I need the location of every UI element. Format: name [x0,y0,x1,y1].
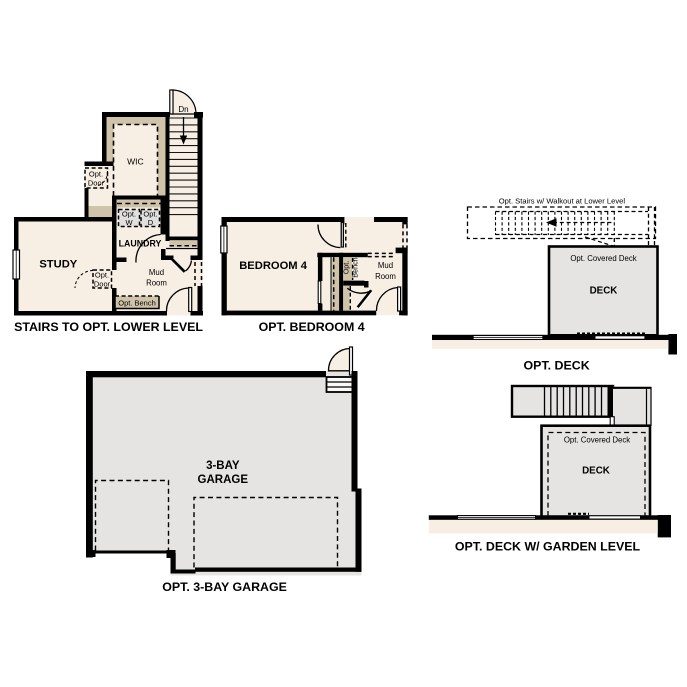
svg-text:OPT. DECK W/ GARDEN LEVEL: OPT. DECK W/ GARDEN LEVEL [455,540,641,554]
svg-text:Mud: Mud [149,268,164,277]
svg-text:DECK: DECK [590,286,618,297]
svg-text:Door: Door [94,280,111,289]
svg-text:Bench: Bench [350,257,359,277]
svg-text:OPT. 3-BAY GARAGE: OPT. 3-BAY GARAGE [162,580,287,594]
svg-text:Dn: Dn [178,105,188,114]
svg-text:GARAGE: GARAGE [198,474,249,486]
svg-text:D: D [148,218,154,227]
svg-text:Mud: Mud [378,261,393,270]
svg-text:Room: Room [375,272,396,281]
svg-text:WIC: WIC [127,156,144,166]
svg-text:Opt.: Opt. [95,271,109,280]
svg-text:LAUNDRY: LAUNDRY [119,239,162,249]
svg-text:OPT. BEDROOM 4: OPT. BEDROOM 4 [259,320,365,334]
svg-text:3-BAY: 3-BAY [206,460,240,472]
svg-text:Room: Room [146,279,167,288]
svg-text:Opt. Covered Deck: Opt. Covered Deck [564,435,630,444]
svg-text:Opt.: Opt. [89,170,103,179]
svg-text:OPT. DECK: OPT. DECK [524,358,590,372]
svg-text:Opt. Covered Deck: Opt. Covered Deck [570,254,636,263]
svg-text:BEDROOM 4: BEDROOM 4 [239,260,308,272]
svg-text:Opt. Stairs w/ Walkout at Lowe: Opt. Stairs w/ Walkout at Lower Level [499,196,626,205]
svg-text:STUDY: STUDY [39,259,77,271]
svg-text:STAIRS TO OPT. LOWER LEVEL: STAIRS TO OPT. LOWER LEVEL [14,320,203,334]
svg-text:W: W [125,218,133,227]
svg-text:Opt.: Opt. [341,261,350,275]
svg-text:DECK: DECK [582,465,610,476]
svg-text:Door: Door [88,179,105,188]
svg-text:Opt. Bench: Opt. Bench [118,298,156,307]
